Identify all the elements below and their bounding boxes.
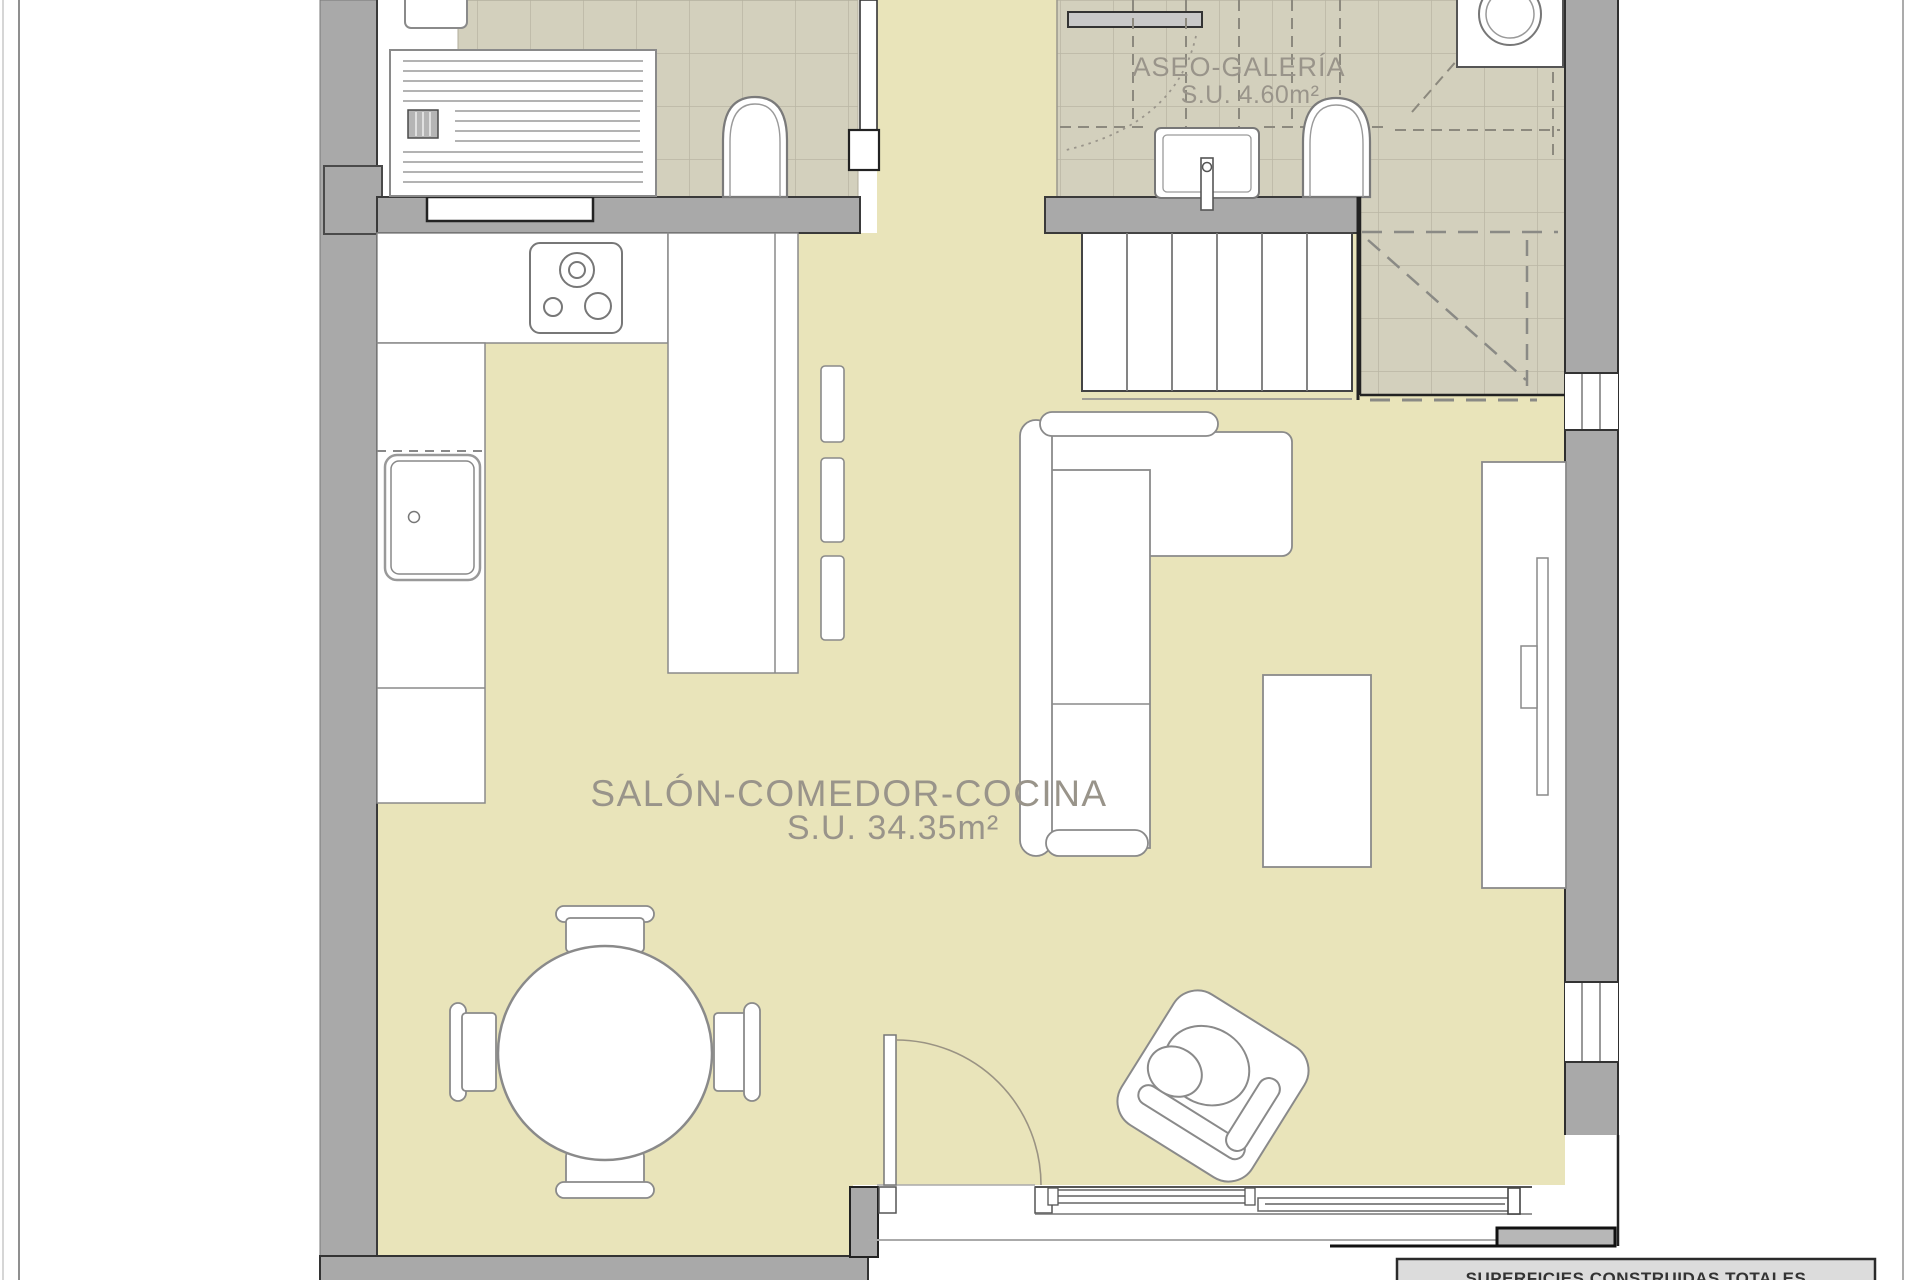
floor-plan-page: SALÓN-COMEDOR-COCINA S.U. 34.35m² ASEO-G… bbox=[0, 0, 1920, 1280]
tv-icon bbox=[1537, 558, 1548, 795]
kitchen-counter-top bbox=[377, 233, 668, 343]
washbasin bbox=[1155, 128, 1259, 210]
wall-left-pillar bbox=[324, 166, 382, 234]
door-jamb bbox=[879, 1187, 896, 1213]
washing-machine bbox=[1457, 0, 1563, 67]
shower-tray bbox=[390, 50, 656, 196]
shelf bbox=[1068, 12, 1202, 27]
laundry-sink bbox=[405, 0, 467, 28]
dining-chair bbox=[450, 1003, 496, 1101]
window-right-upper bbox=[1565, 373, 1618, 430]
bar-stool bbox=[821, 458, 844, 542]
summary-table-title: SUPERFICIES CONSTRUIDAS TOTALES bbox=[1466, 1269, 1807, 1280]
galeria-corner-tiles bbox=[1360, 197, 1565, 395]
toilet-aseo bbox=[1303, 98, 1370, 197]
bar-stool bbox=[821, 366, 844, 442]
wall-step bbox=[850, 1187, 878, 1257]
dining-chair bbox=[714, 1003, 760, 1101]
wall-right-upper bbox=[1565, 0, 1618, 373]
label-salon-area: S.U. 34.35m² bbox=[787, 809, 999, 847]
tv-console bbox=[1482, 462, 1566, 888]
toilet-laundry bbox=[723, 97, 787, 197]
sofa-armrest bbox=[1046, 830, 1148, 856]
summary-table-corner bbox=[1497, 1228, 1615, 1246]
door-jamb-block bbox=[849, 130, 879, 170]
label-aseo: ASEO-GALERÍA bbox=[1132, 52, 1345, 82]
kitchen-sink bbox=[385, 455, 480, 580]
wall-right-mid bbox=[1565, 430, 1618, 982]
wall-right-pillar bbox=[1565, 1062, 1618, 1135]
dining-table bbox=[498, 946, 712, 1160]
window-right-lower bbox=[1565, 982, 1618, 1062]
coffee-table bbox=[1263, 675, 1371, 867]
label-aseo-area: S.U. 4.60m² bbox=[1181, 81, 1320, 109]
tv-bracket bbox=[1521, 646, 1537, 708]
summary-table: SUPERFICIES CONSTRUIDAS TOTALES bbox=[1330, 1228, 1875, 1280]
cooktop bbox=[530, 243, 622, 333]
bar-stool bbox=[821, 556, 844, 640]
wall-top-door-recess bbox=[427, 197, 593, 221]
wall-bottom-left bbox=[320, 1256, 868, 1280]
kitchen-island bbox=[668, 233, 798, 673]
label-salon: SALÓN-COMEDOR-COCINA bbox=[590, 773, 1107, 814]
sofa-backrest-top bbox=[1040, 412, 1218, 436]
hall-floor bbox=[877, 0, 1057, 236]
floor-plan-svg: SALÓN-COMEDOR-COCINA S.U. 34.35m² ASEO-G… bbox=[0, 0, 1920, 1280]
sliding-glass-door bbox=[1035, 1187, 1532, 1214]
entrance-door-leaf bbox=[884, 1035, 896, 1185]
